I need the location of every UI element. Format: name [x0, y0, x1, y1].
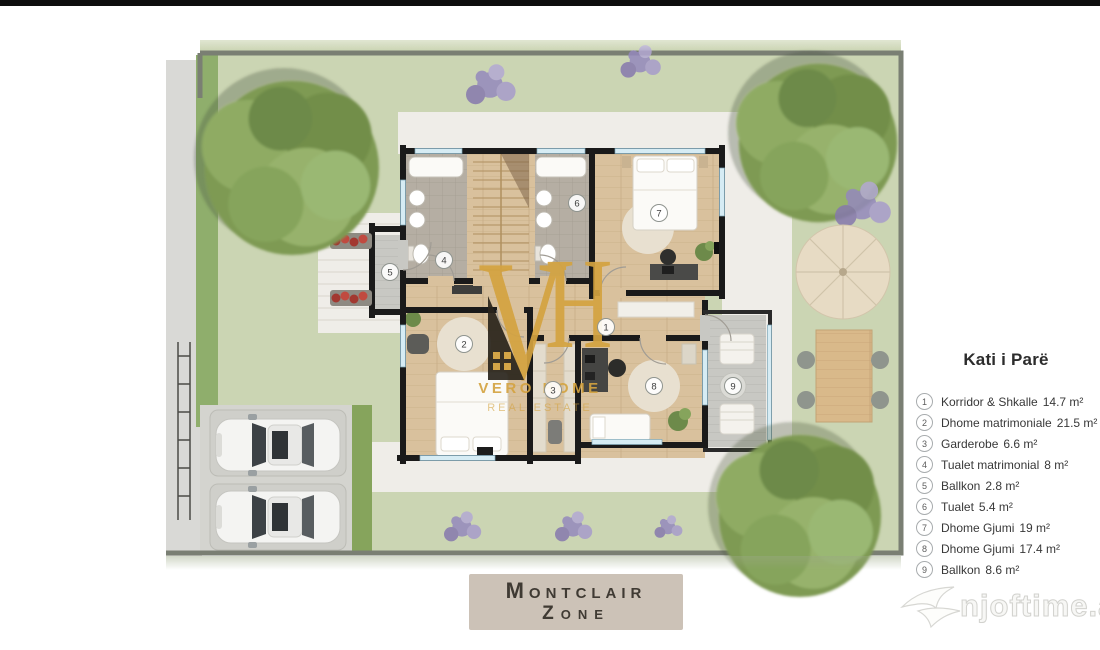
garden-table — [816, 330, 872, 422]
top-fade — [160, 24, 905, 51]
logo-tagline: REAL ESTATE — [487, 402, 593, 414]
legend-item-area: 8 m² — [1044, 458, 1068, 472]
car — [216, 486, 340, 548]
legend-item-area: 2.8 m² — [985, 479, 1019, 493]
legend-item: 3 Garderobe 6.6 m² — [916, 437, 1096, 450]
svg-text:2: 2 — [461, 340, 466, 351]
legend-item-number: 4 — [916, 456, 933, 473]
legend-item-area: 19 m² — [1019, 521, 1050, 535]
logo-monogram-h: H — [545, 231, 613, 376]
legend-item: 6 Tualet 5.4 m² — [916, 500, 1096, 513]
legend-item: 2 Dhome matrimoniale 21.5 m² — [916, 416, 1096, 429]
room-number-badge: 5 — [382, 264, 399, 281]
legend-item-label: Ballkon — [941, 479, 980, 493]
legend-item: 1 Korridor & Shkalle 14.7 m² — [916, 395, 1096, 408]
room-number-badge: 8 — [646, 378, 663, 395]
room-number-badge: 4 — [436, 252, 453, 269]
legend-item-label: Garderobe — [941, 437, 998, 451]
legend-item-number: 7 — [916, 519, 933, 536]
bottom-fade — [166, 556, 901, 570]
legend-item-area: 21.5 m² — [1057, 416, 1098, 430]
room-number-badge: 1 — [598, 319, 615, 336]
legend-item-number: 5 — [916, 477, 933, 494]
legend-item-area: 8.6 m² — [985, 563, 1019, 577]
legend-item-label: Dhome Gjumi — [941, 542, 1014, 556]
svg-text:8: 8 — [651, 382, 656, 393]
legend-item-number: 8 — [916, 540, 933, 557]
legend-item-area: 14.7 m² — [1043, 395, 1084, 409]
room-number-badge: 6 — [569, 195, 586, 212]
zone-name: Montclair — [506, 579, 647, 603]
legend-item: 7 Dhome Gjumi 19 m² — [916, 521, 1096, 534]
watermark-njoftime: njoftime.al — [896, 580, 1100, 632]
legend-item-number: 2 — [916, 414, 933, 431]
legend-item-area: 6.6 m² — [1003, 437, 1037, 451]
legend-item-label: Dhome matrimoniale — [941, 416, 1052, 430]
room-number-badge: 3 — [545, 382, 562, 399]
legend-item-label: Ballkon — [941, 563, 980, 577]
watermark-text: njoftime.al — [960, 588, 1100, 624]
room-number-badge: 7 — [651, 205, 668, 222]
room-number-badge: 9 — [725, 378, 742, 395]
legend-item-area: 17.4 m² — [1019, 542, 1060, 556]
svg-text:7: 7 — [656, 209, 661, 220]
legend-item: 5 Ballkon 2.8 m² — [916, 479, 1096, 492]
legend-item-number: 3 — [916, 435, 933, 452]
car — [216, 414, 340, 476]
legend-item-label: Tualet — [941, 500, 974, 514]
legend-item-label: Tualet matrimonial — [941, 458, 1039, 472]
legend-item-label: Korridor & Shkalle — [941, 395, 1038, 409]
legend-item-number: 1 — [916, 393, 933, 410]
svg-text:1: 1 — [603, 323, 608, 334]
legend-item: 8 Dhome Gjumi 17.4 m² — [916, 542, 1096, 555]
legend-item: 4 Tualet matrimonial 8 m² — [916, 458, 1096, 471]
svg-text:6: 6 — [574, 199, 579, 210]
zone-label-box: Montclair Zone — [469, 574, 683, 630]
svg-text:3: 3 — [550, 386, 555, 397]
legend-item-number: 6 — [916, 498, 933, 515]
legend-item-area: 5.4 m² — [979, 500, 1013, 514]
svg-text:5: 5 — [387, 268, 392, 279]
legend-title: Kati i Parë — [916, 350, 1096, 370]
svg-text:9: 9 — [730, 382, 735, 393]
svg-text:4: 4 — [441, 256, 446, 267]
zone-word: Zone — [542, 603, 610, 625]
legend-item-number: 9 — [916, 561, 933, 578]
legend-item: 9 Ballkon 8.6 m² — [916, 563, 1096, 576]
legend-item-label: Dhome Gjumi — [941, 521, 1014, 535]
logo-name: VERO HOME — [478, 380, 601, 397]
hedge-parking — [352, 405, 372, 553]
legend: Kati i Parë 1 Korridor & Shkalle 14.7 m²… — [916, 350, 1096, 584]
room-number-badge: 2 — [456, 336, 473, 353]
